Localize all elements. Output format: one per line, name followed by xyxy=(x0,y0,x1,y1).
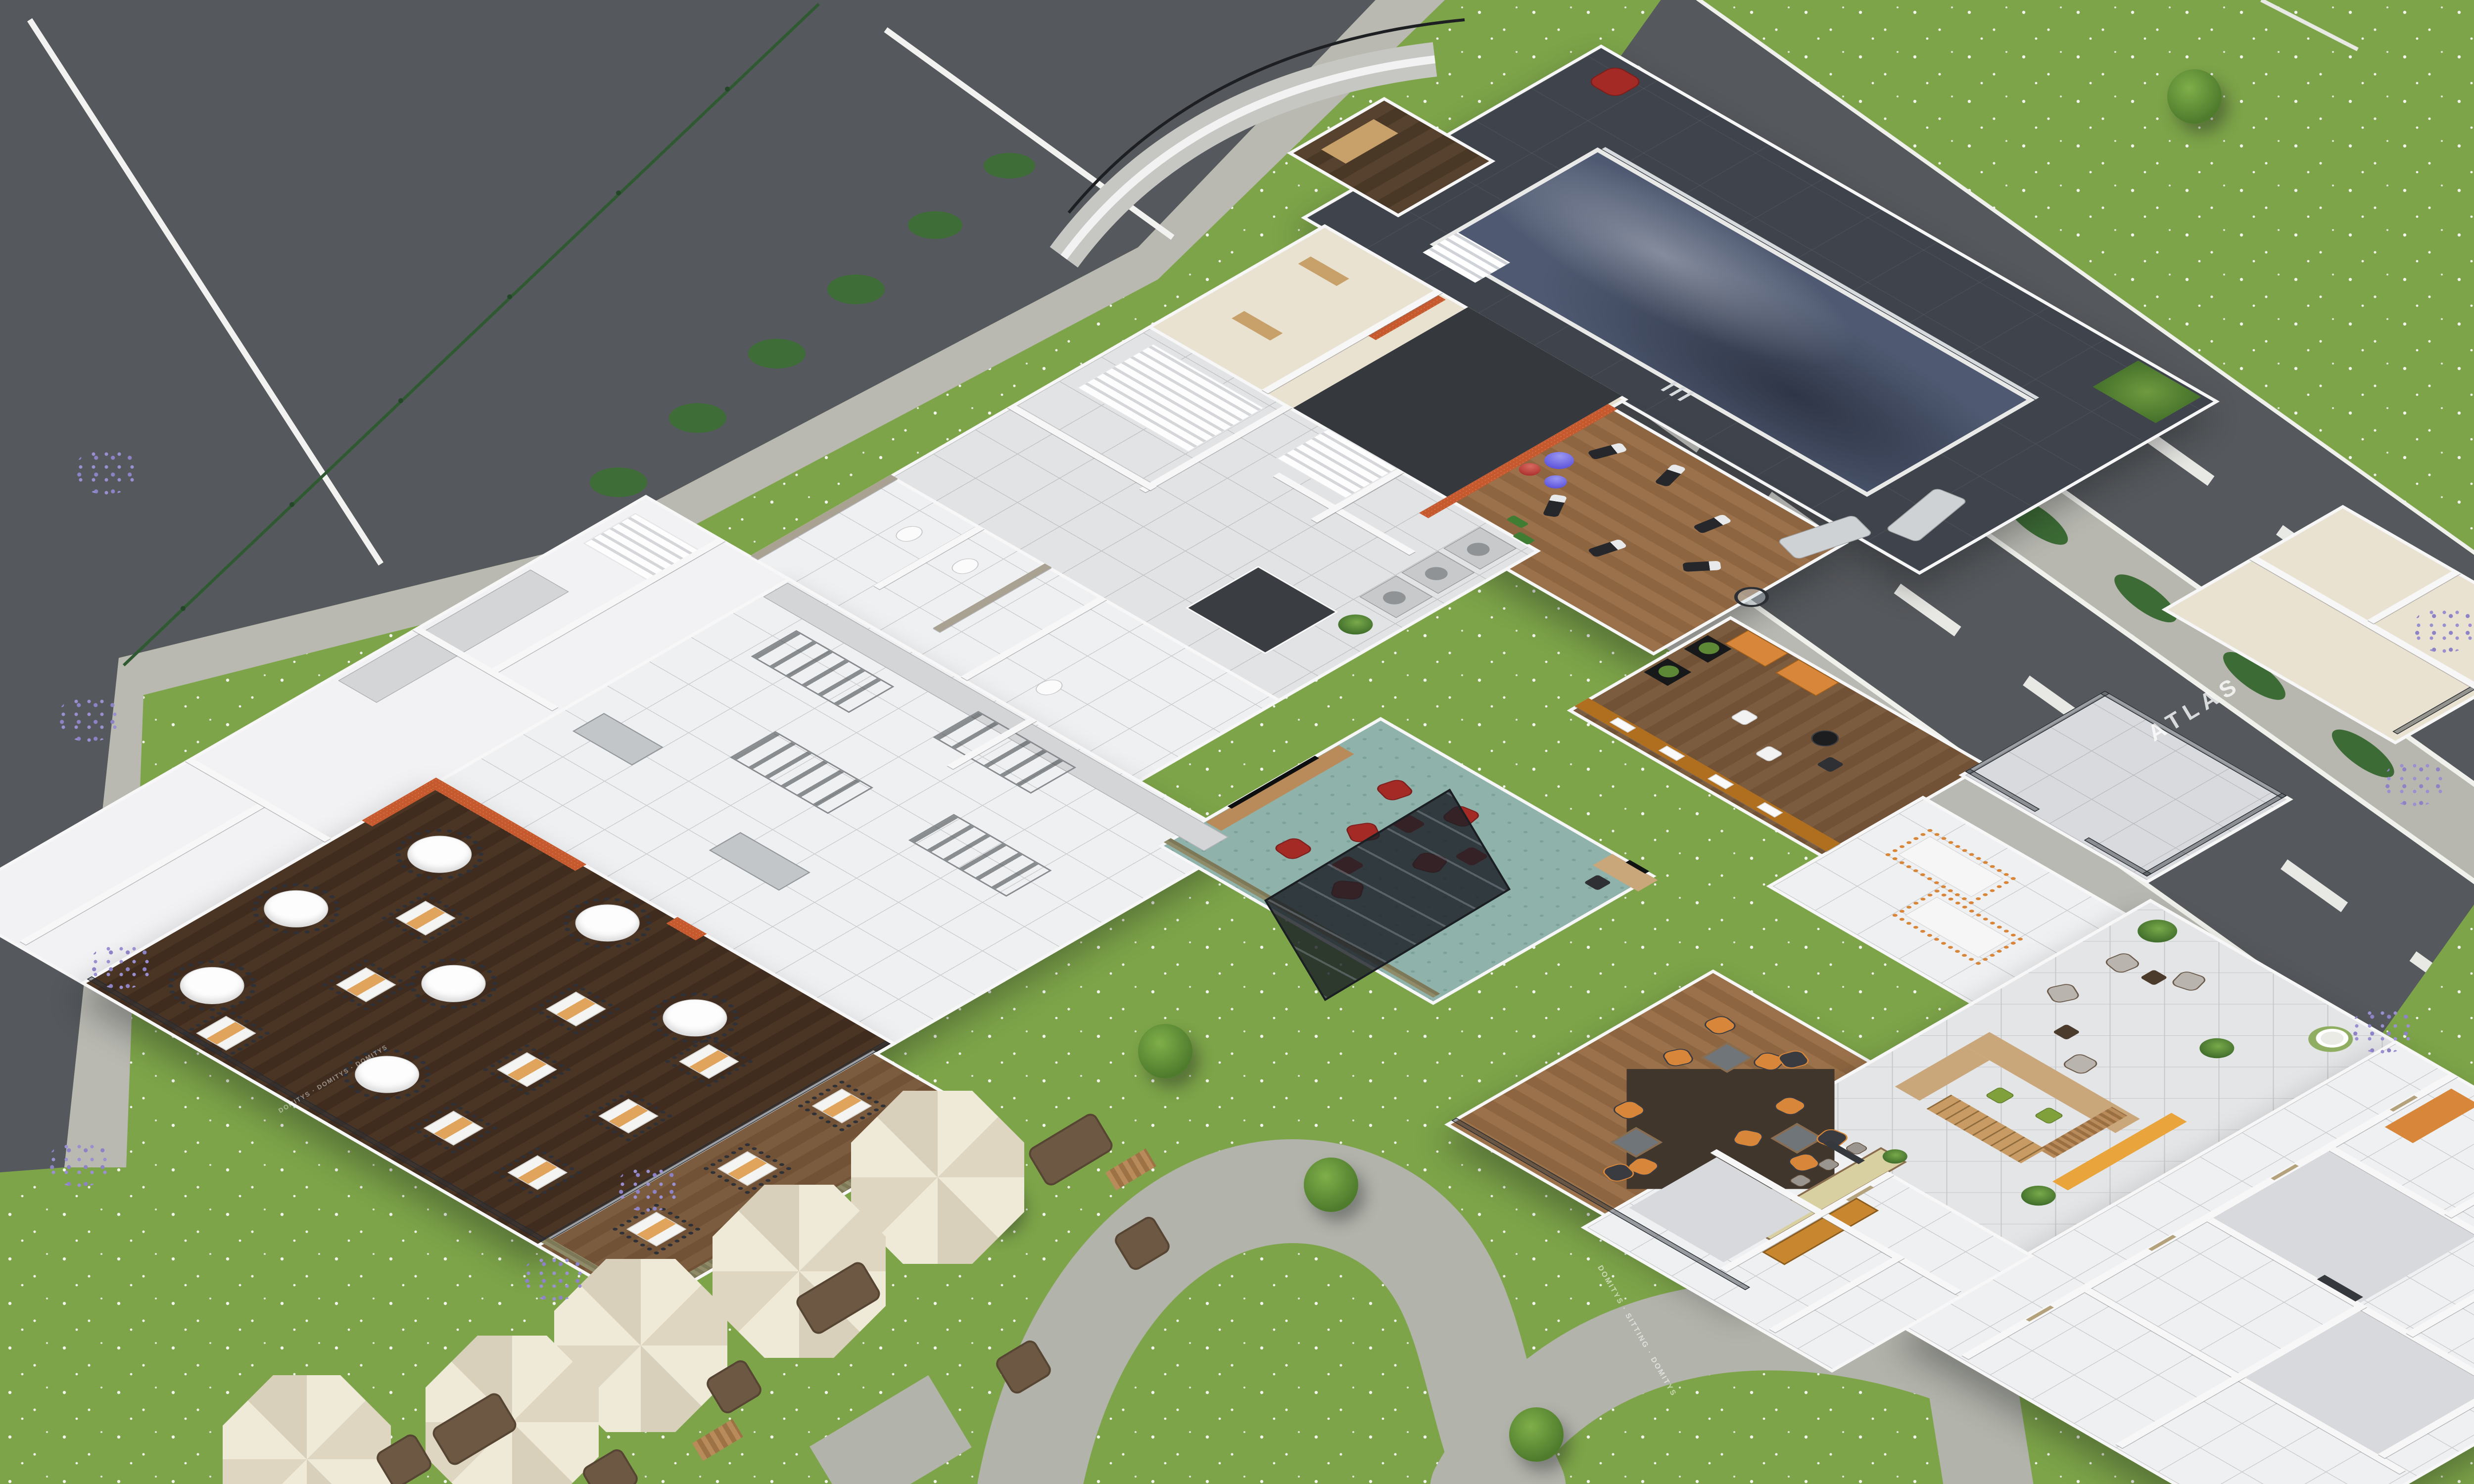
red-armchair xyxy=(1330,880,1365,900)
exercise-bike xyxy=(1682,561,1721,572)
site-plan-render: ATLAS DOMITYS · SITTING · DOMITYS DOMITY… xyxy=(0,0,2474,1484)
